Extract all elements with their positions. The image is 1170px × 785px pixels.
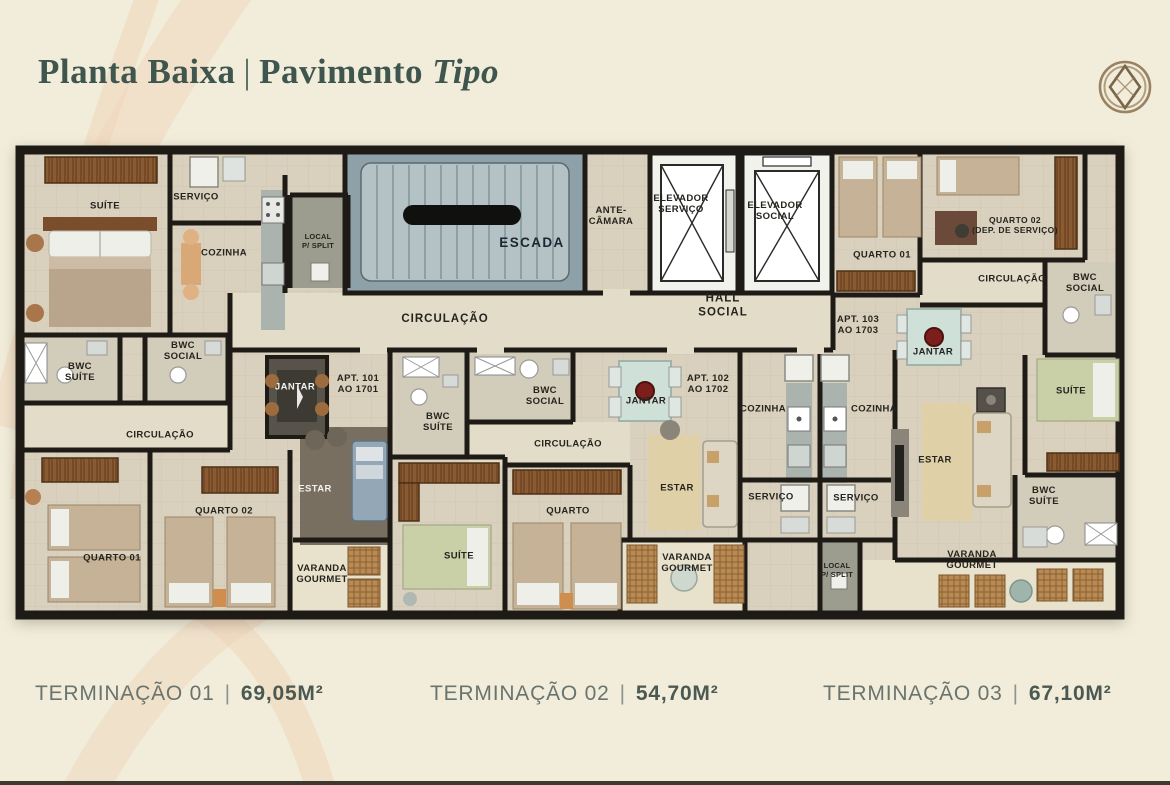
patio-chair [975,575,1005,607]
unit-summary-03: TERMINAÇÃO 03|67,10M² [823,682,1112,706]
patio-chair [348,579,380,607]
stairs [345,150,585,293]
patio-sofa [627,545,657,603]
kitchen-table [181,243,201,285]
wardrobe [837,271,915,291]
wardrobe [1055,157,1077,249]
title-subtitle: Pavimento [259,52,423,91]
unit-name: TERMINAÇÃO 03 [823,682,1003,705]
fridge [785,355,813,381]
bed-headboard [43,217,157,231]
wardrobe [399,463,499,483]
unit-summary-02: TERMINAÇÃO 02|54,70M² [430,682,719,706]
title-main: Planta Baixa [38,52,236,91]
fridge [821,355,849,381]
unit-separator: | [610,682,636,705]
wardrobe [1047,453,1119,471]
floor-plan [15,145,1125,628]
patio-chair [1073,569,1103,601]
page-title: Planta Baixa|Pavimento Tipo [38,52,499,92]
toilet [520,360,538,378]
title-separator: | [236,52,260,91]
patio-sofa [714,545,744,603]
title-subtitle-italic: Tipo [432,52,499,91]
unit-summary-01: TERMINAÇÃO 01|69,05M² [35,682,324,706]
unit-area: 69,05M² [241,682,324,705]
wardrobe [42,458,118,482]
unit-separator: | [215,682,241,705]
toilet [57,367,73,383]
unit-name: TERMINAÇÃO 01 [35,682,215,705]
unit-area: 54,70M² [636,682,719,705]
toilet [411,389,427,405]
toilet [1063,307,1079,323]
unit-area: 67,10M² [1029,682,1112,705]
wardrobe [202,467,278,493]
toilet [170,367,186,383]
elevator-social [742,153,832,293]
stove [262,197,284,223]
patio-chair [939,575,969,607]
patio-chair [348,547,380,575]
brand-logo-icon [1092,54,1158,120]
toilet [1046,526,1064,544]
bottom-edge-strip [0,781,1170,785]
washer [190,157,218,187]
unit-name: TERMINAÇÃO 02 [430,682,610,705]
unit-separator: | [1003,682,1029,705]
wardrobe [513,470,621,494]
wardrobe [45,157,157,183]
sink [824,445,846,467]
elevator-service [650,153,738,293]
washer [781,485,809,511]
washer [827,485,855,511]
patio-chair [1037,569,1067,601]
sink [788,445,810,467]
sink [262,263,284,285]
